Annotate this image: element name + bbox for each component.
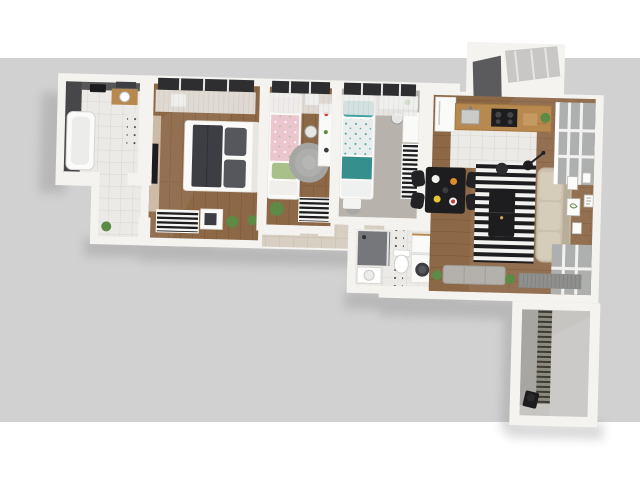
bathtub-basin <box>71 116 90 164</box>
wall-bath-south-b <box>127 173 151 186</box>
bed-foot-blanket <box>269 181 297 196</box>
curtain-pink <box>269 93 332 115</box>
sink-basin <box>120 92 130 102</box>
pink-desk-chair <box>305 126 317 138</box>
bath2-basin <box>364 270 374 280</box>
wall-kids-pink-south-a <box>262 224 300 235</box>
window-frame-teal <box>344 83 416 97</box>
living-radiator <box>519 273 581 289</box>
window-frame-pink <box>272 81 330 95</box>
mirror <box>116 82 136 89</box>
wall-bath-south-a <box>63 171 99 184</box>
balcony <box>519 309 590 417</box>
cooktop <box>491 108 517 127</box>
curtain-bedroom <box>155 90 256 115</box>
pillow-2 <box>223 159 246 188</box>
second-bathroom <box>355 229 436 287</box>
cutting-board <box>523 113 537 125</box>
bay-dark-opening <box>472 55 503 102</box>
entry-hall <box>98 144 142 237</box>
wall-kids-teal-south-a <box>334 216 350 224</box>
floor-pillow <box>343 199 361 209</box>
frame-2 <box>583 173 591 183</box>
shower <box>357 231 390 266</box>
striped-sideboard <box>298 197 331 222</box>
towel-radiator <box>90 84 106 92</box>
bath2-toilet-bowl <box>394 255 408 273</box>
fridge-handle <box>439 101 440 125</box>
kitchen-sink <box>461 110 479 124</box>
bench <box>443 265 505 285</box>
chair-nw <box>411 170 426 187</box>
wall-bath2-west <box>347 233 356 287</box>
dresser-front <box>204 213 216 225</box>
balcony-railing <box>536 310 552 404</box>
pillow-1 <box>224 127 247 156</box>
frame-1 <box>567 176 577 189</box>
striped-wardrobe <box>156 210 199 233</box>
shower-glass <box>387 232 388 266</box>
curtain-teal <box>341 95 417 117</box>
sofa-seat-2 <box>538 202 561 231</box>
apartment <box>33 31 613 440</box>
teal-bed-foot <box>341 181 371 198</box>
teal-duvet <box>342 119 373 156</box>
frame-3 <box>567 198 580 215</box>
floor-plan-render <box>0 0 640 480</box>
north-windows <box>155 78 418 119</box>
floor-plan-svg <box>0 0 640 480</box>
wall-entry-bedroom <box>138 217 151 239</box>
teal-blanket <box>342 157 373 180</box>
coffee-table-seam <box>490 212 514 213</box>
window-frame-bedroom <box>158 78 254 93</box>
teal-wardrobe <box>403 112 420 142</box>
fridge <box>435 97 456 132</box>
frame-5 <box>572 223 581 234</box>
wall-kids-pink-south-b <box>318 226 334 236</box>
wall-bath-bedroom <box>137 81 154 181</box>
